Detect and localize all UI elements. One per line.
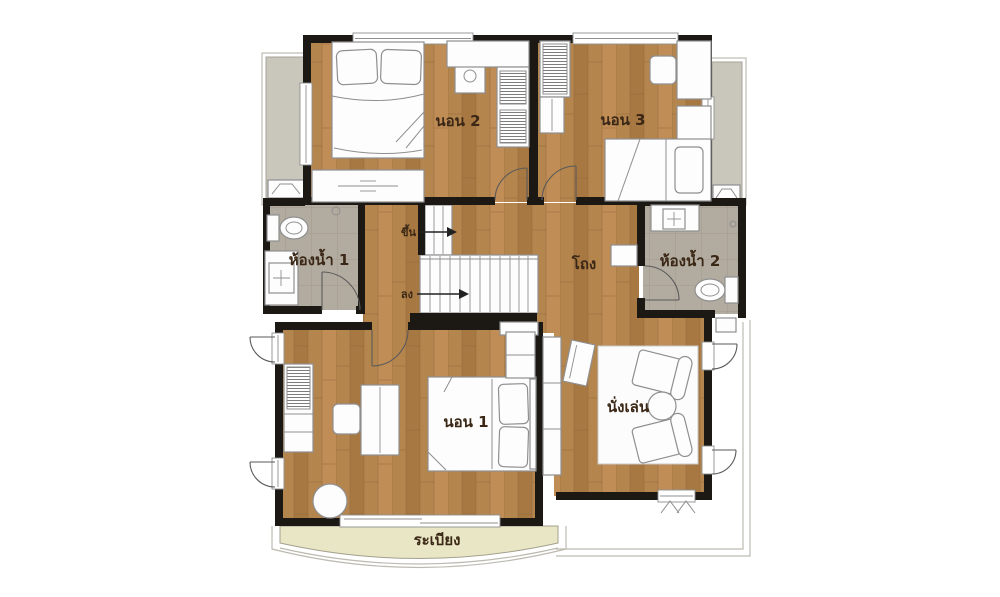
- single-bed: [605, 139, 711, 201]
- corner-closet: [506, 332, 535, 378]
- side-balcony-right: [712, 62, 742, 203]
- wall-cabinet: [543, 337, 561, 475]
- cabinet: [677, 106, 711, 140]
- sliding-door-balcony: [340, 515, 500, 527]
- room-label-bedroom2: นอน 2: [435, 112, 480, 130]
- room-label-bedroom3: นอน 3: [600, 111, 645, 129]
- stair-label-down: ลง: [401, 288, 413, 301]
- floor-plan: นอน 2 นอน 3 ห้องน้ำ 1 โถง ห้องน้ำ 2 นอน …: [0, 0, 1000, 592]
- wardrobe: [284, 364, 313, 452]
- hall-cabinet: [611, 245, 637, 266]
- vanity-sink: [651, 205, 699, 231]
- room-label-bathroom1: ห้องน้ำ 1: [289, 248, 350, 269]
- stair-label-up: ขึ้น: [401, 224, 417, 239]
- service-fixture: [716, 318, 736, 332]
- room-label-bathroom2: ห้องน้ำ 2: [660, 249, 721, 270]
- toilet-icon: [695, 277, 738, 303]
- room-label-balcony: ระเบียง: [414, 531, 461, 549]
- room-label-sitting: นั่งเล่น: [607, 396, 650, 416]
- room-label-hall: โถง: [571, 254, 596, 273]
- toilet-icon: [267, 215, 308, 241]
- side-table: [648, 392, 676, 420]
- floor-plan-page: นอน 2 นอน 3 ห้องน้ำ 1 โถง ห้องน้ำ 2 นอน …: [0, 0, 1000, 592]
- round-table: [313, 484, 347, 518]
- room-label-bedroom1: นอน 1: [443, 413, 488, 431]
- dresser: [312, 170, 424, 202]
- ac-unit-left-icon: [268, 180, 304, 198]
- double-bed: [332, 42, 424, 158]
